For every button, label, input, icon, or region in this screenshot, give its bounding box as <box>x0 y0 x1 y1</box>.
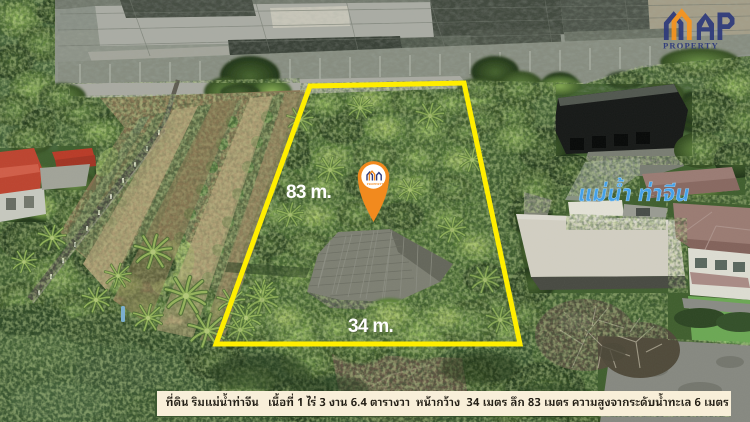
svg-text:PROPERTY: PROPERTY <box>367 182 385 186</box>
svg-text:PROPERTY: PROPERTY <box>663 41 719 51</box>
svg-text:34 m.: 34 m. <box>348 316 393 337</box>
svg-text:83 m.: 83 m. <box>286 182 331 203</box>
